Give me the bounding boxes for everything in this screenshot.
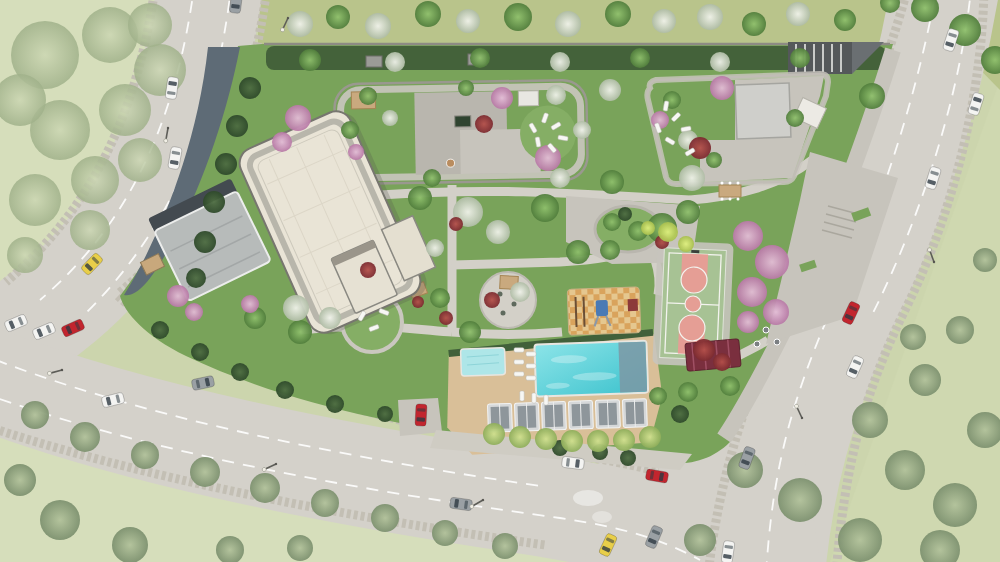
tree-red — [439, 311, 453, 325]
podium-a-table — [446, 159, 454, 167]
sun-lounger — [526, 352, 536, 356]
sun-lounger — [520, 391, 524, 401]
tree-green — [720, 376, 740, 396]
tree-dark — [231, 363, 249, 381]
tree-sage — [371, 504, 399, 532]
center-circle — [685, 296, 702, 313]
tree-green — [408, 186, 432, 210]
tree-white — [546, 85, 566, 105]
hoop-top — [691, 250, 699, 253]
court-key-circle-top — [680, 266, 707, 293]
tree-green — [341, 121, 359, 139]
road-haze — [573, 490, 603, 506]
court-key-circle-bottom — [678, 314, 705, 341]
kids-pool — [461, 348, 506, 377]
tree-green — [423, 169, 441, 187]
tree-white — [283, 295, 309, 321]
tree-green — [859, 83, 885, 109]
tree-pink — [167, 285, 189, 307]
tree-white — [319, 307, 341, 329]
tree-deck — [639, 426, 661, 448]
tree-sage — [973, 248, 997, 272]
tree-pink — [733, 221, 763, 251]
tree-deck — [613, 429, 635, 451]
tree-dark — [326, 395, 344, 413]
tree-sage — [21, 401, 49, 429]
tree-green — [786, 109, 804, 127]
tree-sage — [838, 518, 882, 562]
tree-pink — [285, 105, 311, 131]
tree-white — [573, 121, 591, 139]
pool-cabana — [541, 401, 566, 430]
pool-slate-section — [618, 342, 647, 393]
tree-sage — [933, 483, 977, 527]
tree-green — [504, 3, 532, 31]
tree-sage — [852, 402, 888, 438]
tree-green — [600, 240, 620, 260]
tree-pink — [348, 144, 364, 160]
tree-red — [693, 339, 715, 361]
sun-lounger — [514, 360, 524, 364]
tree-white — [555, 11, 581, 37]
tree-dark — [215, 153, 237, 175]
tree-sage — [778, 478, 822, 522]
podium-b-dining-table — [719, 182, 741, 201]
tree-sage — [432, 520, 458, 546]
tree-green — [790, 48, 810, 68]
tree-white — [697, 4, 723, 30]
sun-lounger — [526, 376, 536, 380]
tree-pink — [710, 76, 734, 100]
tree-yellow — [678, 236, 694, 252]
tree-yellow — [641, 221, 655, 235]
tree-dark — [203, 191, 225, 213]
tree-green — [649, 387, 667, 405]
tree-sage — [250, 473, 280, 503]
tree-yellow — [658, 222, 678, 242]
podium-a-planter — [455, 116, 471, 127]
podium-b-roof-block — [735, 83, 791, 139]
tree-sage — [4, 464, 36, 496]
tree-dark — [226, 115, 248, 137]
tree-pink — [737, 311, 759, 333]
tree-green — [459, 321, 481, 343]
tree-green — [470, 48, 490, 68]
tree-green — [834, 9, 856, 31]
sun-lounger — [526, 364, 536, 368]
tree-pink — [535, 145, 561, 171]
car-white — [561, 456, 584, 470]
tree-pink — [272, 132, 292, 152]
tree-white — [456, 9, 480, 33]
tree-dark — [151, 321, 169, 339]
tree-pale — [71, 156, 119, 204]
tree-sage — [190, 457, 220, 487]
aerial-site-render — [0, 0, 1000, 562]
tree-sage — [40, 500, 80, 540]
tree-green — [299, 49, 321, 71]
tree-dark — [191, 343, 209, 361]
tree-white — [287, 11, 313, 37]
tree-pale — [82, 7, 138, 63]
tree-pink — [763, 299, 789, 325]
tree-sage — [70, 422, 100, 452]
tree-sage — [900, 324, 926, 350]
pool-cabana — [568, 401, 593, 430]
sun-lounger — [514, 348, 524, 352]
rooftop-unit-1 — [366, 56, 382, 67]
road-haze-2 — [592, 511, 612, 523]
tree-pink — [755, 245, 789, 279]
tree-white — [426, 239, 444, 257]
tree-white — [599, 79, 621, 101]
tree-deck — [587, 430, 609, 452]
tree-green — [742, 12, 766, 36]
tree-sage — [131, 441, 159, 469]
tree-white — [486, 220, 510, 244]
tree-pale — [9, 174, 61, 226]
tree-sage — [112, 527, 148, 562]
tree-pale — [128, 3, 172, 47]
tree-sage — [946, 316, 974, 344]
tree-dark — [239, 77, 261, 99]
tree-red — [484, 292, 500, 308]
sun-lounger — [514, 372, 524, 376]
tree-green — [415, 1, 441, 27]
tree-red — [713, 353, 731, 371]
tree-green — [630, 48, 650, 68]
tree-pale — [7, 237, 43, 273]
tree-pink — [491, 87, 513, 109]
tree-sage — [311, 489, 339, 517]
tree-white — [510, 282, 530, 302]
tree-white — [550, 168, 570, 188]
tree-sage — [885, 450, 925, 490]
tree-pink — [241, 295, 259, 313]
tree-white — [710, 52, 730, 72]
tree-red — [412, 296, 424, 308]
tree-dark — [618, 207, 632, 221]
tree-green — [430, 288, 450, 308]
tree-pale — [134, 44, 186, 96]
tree-dark — [194, 231, 216, 253]
tree-dark — [671, 405, 689, 423]
sun-lounger — [544, 395, 548, 405]
tree-red — [475, 115, 493, 133]
tree-pink — [185, 303, 203, 321]
tree-red — [449, 217, 463, 231]
tree-deck — [483, 423, 505, 445]
sun-lounger — [532, 393, 536, 403]
tree-sage — [492, 533, 518, 559]
tree-pale — [99, 84, 151, 136]
tree-white — [652, 9, 676, 33]
tree-white — [786, 2, 810, 26]
tree-green — [676, 200, 700, 224]
tree-deck — [509, 426, 531, 448]
tree-sage — [287, 535, 313, 561]
tree-dark — [377, 406, 393, 422]
playground — [567, 287, 641, 335]
tree-white — [679, 165, 705, 191]
play-kiosk — [628, 299, 638, 311]
tree-deck — [561, 430, 583, 452]
tree-white — [382, 110, 398, 126]
tree-red — [360, 262, 376, 278]
tree-green — [605, 1, 631, 27]
slide-structure — [596, 300, 609, 316]
tree-dark — [276, 381, 294, 399]
tree-deck — [535, 428, 557, 450]
tree-green — [678, 382, 698, 402]
pool-cabana — [595, 400, 620, 429]
tree-green — [359, 87, 377, 105]
site-plan-svg — [0, 0, 1000, 562]
tree-green — [288, 320, 312, 344]
tree-pale — [118, 138, 162, 182]
tree-sage — [684, 524, 716, 556]
tree-white — [550, 52, 570, 72]
pool-cabana — [622, 399, 647, 428]
podium-a-canopy — [518, 91, 538, 106]
tree-dark — [620, 450, 636, 466]
tree-green — [531, 194, 559, 222]
tree-pale — [70, 210, 110, 250]
tree-white — [365, 13, 391, 39]
tree-pink — [737, 277, 767, 307]
tree-green — [600, 170, 624, 194]
tree-pink — [651, 111, 669, 129]
grass-strip-top — [258, 0, 910, 45]
tree-green — [326, 5, 350, 29]
tree-white — [385, 52, 405, 72]
tree-sage — [909, 364, 941, 396]
tree-green — [566, 240, 590, 264]
tree-dark — [186, 268, 206, 288]
car-red — [415, 404, 427, 427]
tree-green — [458, 80, 474, 96]
